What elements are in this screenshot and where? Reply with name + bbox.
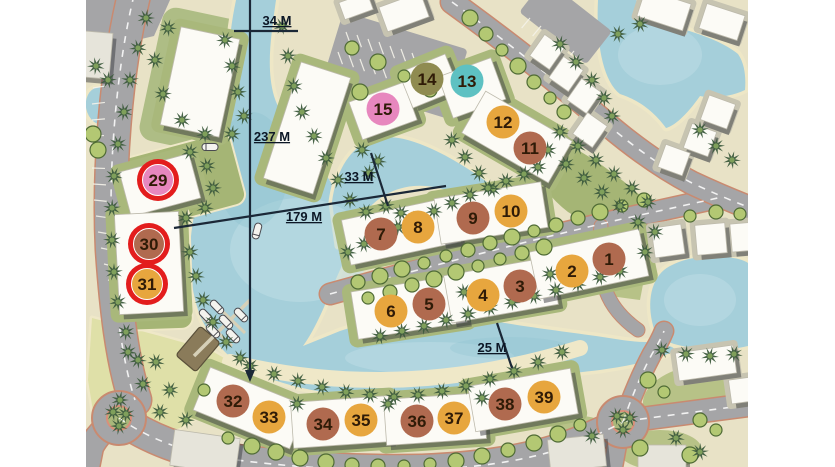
building-marker-10: 10 [495, 195, 528, 228]
building-marker-13: 13 [451, 65, 484, 98]
bush-icon [222, 432, 234, 444]
building-marker-2: 2 [556, 255, 589, 288]
bush-icon [504, 229, 520, 245]
building-number: 39 [535, 388, 554, 407]
bush-icon [85, 126, 101, 142]
bush-icon [292, 450, 308, 466]
bush-icon [198, 384, 210, 396]
building-number: 14 [418, 70, 437, 89]
bush-icon [345, 41, 359, 55]
building-number: 37 [445, 409, 464, 428]
building-number: 32 [224, 392, 243, 411]
building-marker-14: 14 [411, 63, 444, 96]
bush-icon [268, 444, 284, 460]
building-number: 15 [374, 100, 393, 119]
bush-icon [448, 453, 464, 467]
bush-icon [461, 243, 475, 257]
bush-icon [571, 211, 585, 225]
bush-icon [574, 419, 586, 431]
bush-icon [592, 204, 608, 220]
bush-icon [515, 246, 529, 260]
site-plan-map: 34 M237 M33 M179 M25 M 12345678910111213… [0, 0, 835, 467]
measurement-label-34m: 34 M [263, 13, 292, 28]
bush-icon [501, 443, 515, 457]
bush-icon [426, 271, 442, 287]
building-marker-11: 11 [514, 132, 547, 165]
building-number: 1 [604, 250, 613, 269]
bush-icon [494, 253, 506, 265]
building-number: 36 [408, 412, 427, 431]
building-number: 9 [468, 209, 477, 228]
building-marker-1: 1 [593, 243, 626, 276]
bush-icon [536, 239, 552, 255]
building-number: 7 [376, 225, 385, 244]
building-marker-6: 6 [375, 295, 408, 328]
bush-icon [352, 84, 368, 100]
building-marker-32: 32 [217, 385, 250, 418]
building-number: 34 [314, 415, 333, 434]
bush-icon [398, 70, 410, 82]
bush-icon [526, 435, 542, 451]
bush-icon [440, 250, 452, 262]
bush-icon [90, 142, 106, 158]
bush-icon [398, 460, 410, 467]
bush-icon [693, 413, 707, 427]
building-marker-29: 29 [137, 159, 179, 201]
bush-icon [371, 459, 385, 467]
bush-icon [351, 275, 365, 289]
building-number: 31 [138, 275, 157, 294]
building-number: 12 [494, 113, 513, 132]
bush-icon [372, 268, 388, 284]
measurement-label-179m: 179 M [286, 209, 322, 224]
bush-icon [370, 54, 386, 70]
building-number: 11 [521, 139, 539, 158]
building-number: 5 [424, 295, 433, 314]
bush-icon [550, 426, 566, 442]
bush-icon [549, 218, 563, 232]
building-marker-3: 3 [504, 270, 537, 303]
building-marker-34: 34 [307, 408, 340, 441]
building-number: 30 [140, 235, 159, 254]
bush-icon [544, 92, 556, 104]
building-marker-37: 37 [438, 402, 471, 435]
building [695, 223, 728, 256]
bush-icon [528, 225, 540, 237]
bush-icon [424, 458, 436, 467]
bush-icon [496, 44, 508, 56]
building-marker-15: 15 [367, 93, 400, 126]
bush-icon [479, 27, 493, 41]
building-marker-36: 36 [401, 405, 434, 438]
bush-icon [684, 210, 696, 222]
building-marker-30: 30 [128, 223, 170, 265]
building-number: 13 [458, 72, 477, 91]
bush-icon [472, 260, 484, 272]
bush-icon [462, 10, 478, 26]
bush-icon [318, 454, 334, 467]
building-number: 29 [149, 171, 168, 190]
building-marker-8: 8 [402, 211, 435, 244]
building-number: 35 [352, 411, 371, 430]
building-number: 33 [260, 408, 279, 427]
bush-icon [345, 458, 359, 467]
bush-icon [418, 257, 430, 269]
building-marker-35: 35 [345, 404, 378, 437]
building-marker-38: 38 [489, 388, 522, 421]
measurement-label-25m: 25 M [478, 340, 507, 355]
building-marker-12: 12 [487, 106, 520, 139]
building-number: 4 [478, 286, 488, 305]
building-number: 3 [515, 277, 524, 296]
bush-icon [394, 261, 410, 277]
building-number: 8 [413, 218, 422, 237]
bush-icon [244, 438, 260, 454]
building-number: 38 [496, 395, 515, 414]
bush-icon [710, 424, 722, 436]
bush-icon [557, 105, 571, 119]
measurement-label-33m: 33 M [345, 169, 374, 184]
bush-icon [405, 278, 419, 292]
building-marker-7: 7 [365, 218, 398, 251]
bush-icon [448, 264, 464, 280]
measurement-label-237m: 237 M [254, 129, 290, 144]
bush-icon [474, 448, 490, 464]
building-marker-33: 33 [253, 401, 286, 434]
bush-icon [709, 205, 723, 219]
bush-icon [483, 236, 497, 250]
bush-icon [510, 58, 526, 74]
bush-icon [734, 208, 746, 220]
bush-icon [362, 292, 374, 304]
building-number: 2 [567, 262, 576, 281]
building-number: 10 [502, 202, 521, 221]
building-marker-39: 39 [528, 381, 561, 414]
bush-icon [640, 372, 656, 388]
bush-icon [527, 75, 541, 89]
boat-icon [202, 144, 218, 151]
bush-icon [658, 386, 670, 398]
building-marker-4: 4 [467, 279, 500, 312]
building-number: 6 [386, 302, 395, 321]
building-marker-9: 9 [457, 202, 490, 235]
building-marker-5: 5 [413, 288, 446, 321]
site-plan-page: 34 M237 M33 M179 M25 M 12345678910111213… [0, 0, 835, 467]
building-marker-31: 31 [126, 263, 168, 305]
bush-icon [632, 440, 648, 456]
